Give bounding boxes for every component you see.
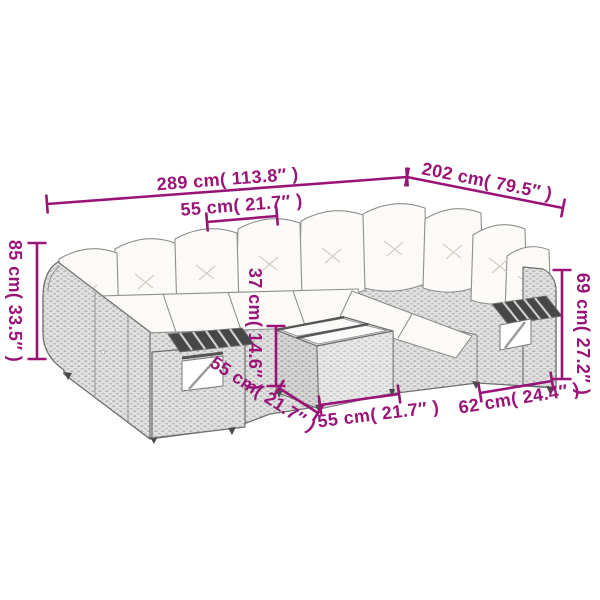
dimension-sofa-side-length: 202 cm( 79.5″ ) xyxy=(405,158,565,217)
sofa-set-illustration: 289 cm( 113.8″ )202 cm( 79.5″ )55 cm( 21… xyxy=(0,0,600,600)
dimension-back-height: 85 cm( 33.5″ ) xyxy=(5,240,47,362)
dimension-label-cushion-width: 55 cm( 21.7″ ) xyxy=(180,190,303,220)
dimension-arm-height: 69 cm( 27.2″ ) xyxy=(553,270,594,395)
dimension-label-arm-height: 69 cm( 27.2″ ) xyxy=(573,273,593,395)
dimension-label-back-height: 85 cm( 33.5″ ) xyxy=(5,240,25,362)
product-dimension-diagram: 289 cm( 113.8″ )202 cm( 79.5″ )55 cm( 21… xyxy=(0,0,600,600)
dimension-label-sofa-side-length: 202 cm( 79.5″ ) xyxy=(420,158,554,203)
